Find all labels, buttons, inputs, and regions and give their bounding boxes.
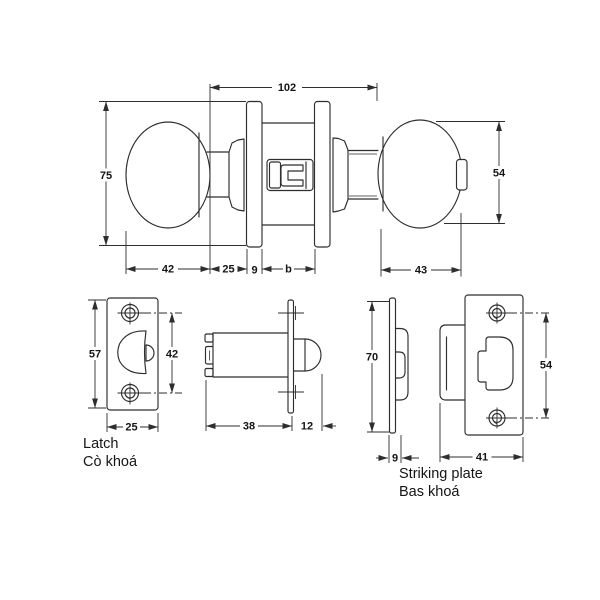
spindle [267,160,313,191]
latch-rear-tab [205,334,213,342]
strike-front-view: 54 41 Striking plate Bas khoá [399,295,556,500]
strike-side-view: 70 9 [362,298,419,465]
strike-bolt-profile [396,329,409,401]
outside-rose-cone [333,138,348,212]
inside-rose-plate [247,102,263,248]
lockset-diagram: 102 75 54 42 25 9 b 43 [0,0,600,600]
strike-caption-vi: Bas khoá [399,484,460,500]
dim-latch-plate-height: 57 [89,349,101,361]
key-cylinder [457,160,468,191]
latch-rear-tab [205,369,213,377]
dim-strike-screw-spacing: 54 [540,360,553,372]
dim-door-thickness: b [285,264,292,276]
dim-strike-height: 70 [366,352,378,364]
dim-strike-width: 41 [476,452,488,464]
strike-caption-en: Striking plate [399,466,483,482]
technical-drawing-page: 102 75 54 42 25 9 b 43 [0,0,600,600]
inside-knob [126,122,210,228]
dim-overall-length: 102 [278,82,296,94]
dim-outside-knob-width: 43 [415,265,427,277]
inside-rose-cone [229,139,244,211]
latch-faceplate-edge [288,300,294,413]
knob-assembly-view: 102 75 54 42 25 9 b 43 [96,81,509,277]
dim-inside-neck: 25 [222,264,234,276]
dim-inside-knob-width: 42 [162,264,174,276]
dim-rose-height: 75 [100,170,112,182]
dim-strike-thickness: 9 [392,453,398,465]
latch-side-view: 38 12 [205,300,336,433]
latch-caption-vi: Cò khoá [83,454,138,470]
outside-knob [378,120,462,228]
outside-rose-plate [315,102,331,248]
dim-knob-diameter: 54 [493,168,506,180]
dim-latch-screw-spacing: 42 [166,349,178,361]
strike-lip [440,325,465,400]
dim-latch-case-length: 38 [243,421,255,433]
latch-caption-en: Latch [83,436,118,452]
dim-bolt-projection: 12 [301,421,313,433]
strike-plate-edge [390,298,396,433]
latch-bolt-side [294,339,322,371]
dim-latch-plate-width: 25 [125,422,137,434]
dim-rose-thickness: 9 [251,265,257,277]
latch-front-view: 57 42 25 Latch Cò khoá [83,298,182,470]
